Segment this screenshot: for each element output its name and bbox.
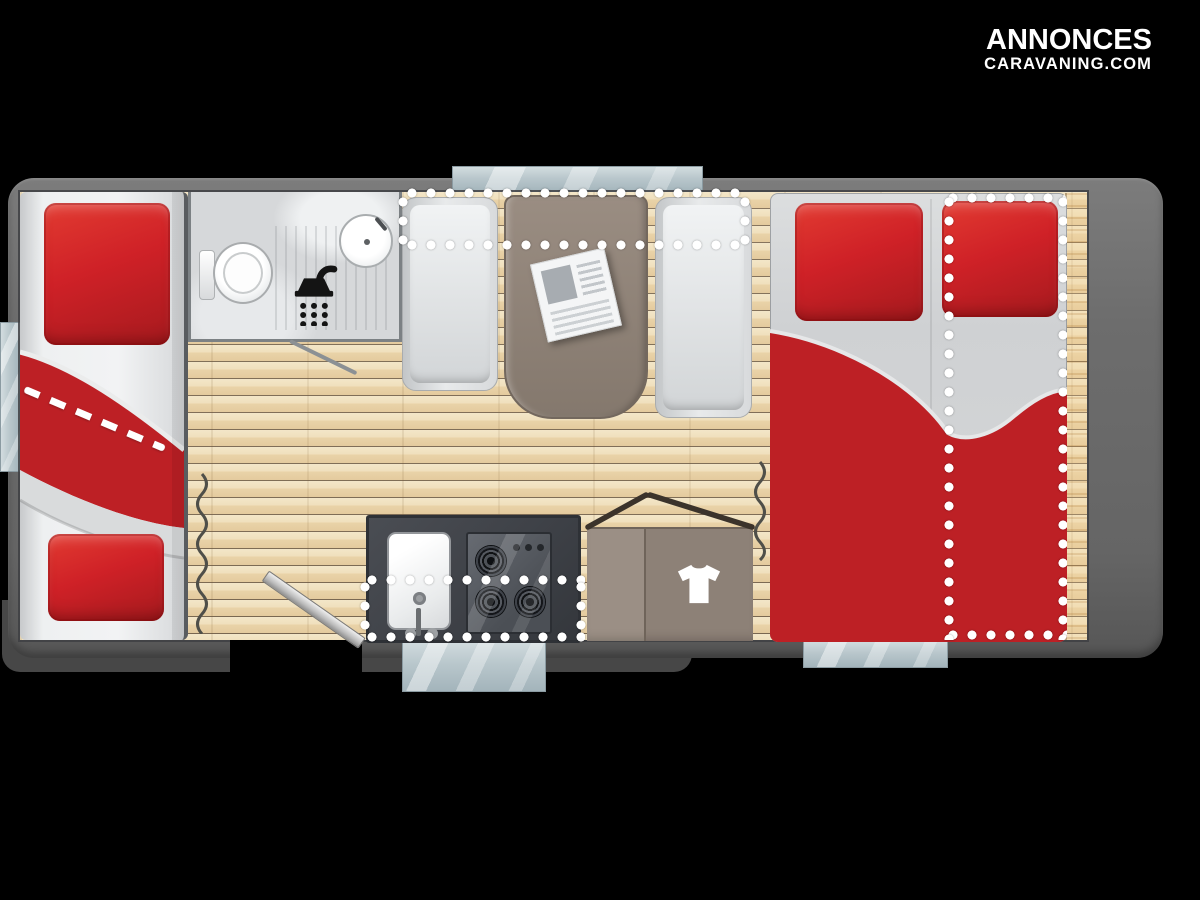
- kitchen-outline-top: [363, 575, 585, 585]
- washbasin-drain: [364, 239, 370, 245]
- bed-duvet: [770, 193, 1067, 642]
- kitchen-outline-bottom: [363, 632, 585, 642]
- kitchen-outline-right: [576, 578, 586, 640]
- tshirt-icon: [676, 562, 722, 606]
- bed-outline-left: [944, 193, 954, 640]
- washbasin-tap: [374, 217, 387, 232]
- shower-icon: [289, 264, 339, 326]
- dinette-bed-outline-left: [398, 193, 408, 247]
- bed-outline-right: [1058, 193, 1067, 640]
- bunk-beds: [20, 192, 188, 640]
- burner: [476, 587, 506, 617]
- newspaper-text: [550, 299, 614, 336]
- bed-outline-top: [944, 193, 1067, 203]
- dinette-bed-outline-top: [403, 188, 747, 198]
- window-front-left: [0, 322, 21, 472]
- screenshot-canvas: ANNONCES CARAVANING.COM: [0, 0, 1200, 900]
- newspaper-photo: [541, 265, 578, 305]
- sink-drain: [413, 592, 426, 605]
- burner: [515, 587, 545, 617]
- hob-knob: [525, 544, 532, 551]
- curtain-icon: [193, 472, 211, 634]
- brand-logo: ANNONCES CARAVANING.COM: [984, 26, 1152, 73]
- brand-line1: ANNONCES: [984, 26, 1152, 55]
- dinette-table: [504, 195, 648, 419]
- bench-cushion: [663, 205, 744, 410]
- wardrobe-door-swing: [584, 490, 756, 530]
- wardrobe: [587, 527, 753, 641]
- toilet-seat: [223, 252, 263, 294]
- double-bed: [770, 193, 1067, 642]
- brand-line2: CARAVANING.COM: [984, 56, 1152, 73]
- bench-cushion: [410, 205, 490, 383]
- wood-floor-strip: [1065, 193, 1087, 640]
- bed-outline-bottom: [944, 630, 1067, 640]
- wardrobe-door-seam: [644, 529, 646, 641]
- curtain-icon: [751, 460, 769, 562]
- kitchen-outline-left: [360, 578, 370, 640]
- newspaper-text: [576, 260, 607, 297]
- window-kitchen: [402, 640, 546, 692]
- hob-knob: [513, 544, 520, 551]
- dinette-bed-outline-bottom: [403, 240, 747, 250]
- bathroom: [188, 192, 402, 342]
- newspaper: [530, 247, 622, 342]
- dinette-bench-right: [655, 197, 752, 418]
- toilet-bowl: [213, 242, 273, 304]
- burner: [476, 546, 506, 576]
- bunk-pillow-bottom: [48, 534, 164, 621]
- window-bedroom: [803, 640, 948, 668]
- washbasin: [339, 214, 393, 268]
- hob-knob: [537, 544, 544, 551]
- entry-door-opening: [230, 640, 362, 674]
- dinette-bench-left: [402, 197, 498, 391]
- bunk-frame-edge: [172, 192, 184, 640]
- dinette-bed-outline-right: [740, 193, 750, 247]
